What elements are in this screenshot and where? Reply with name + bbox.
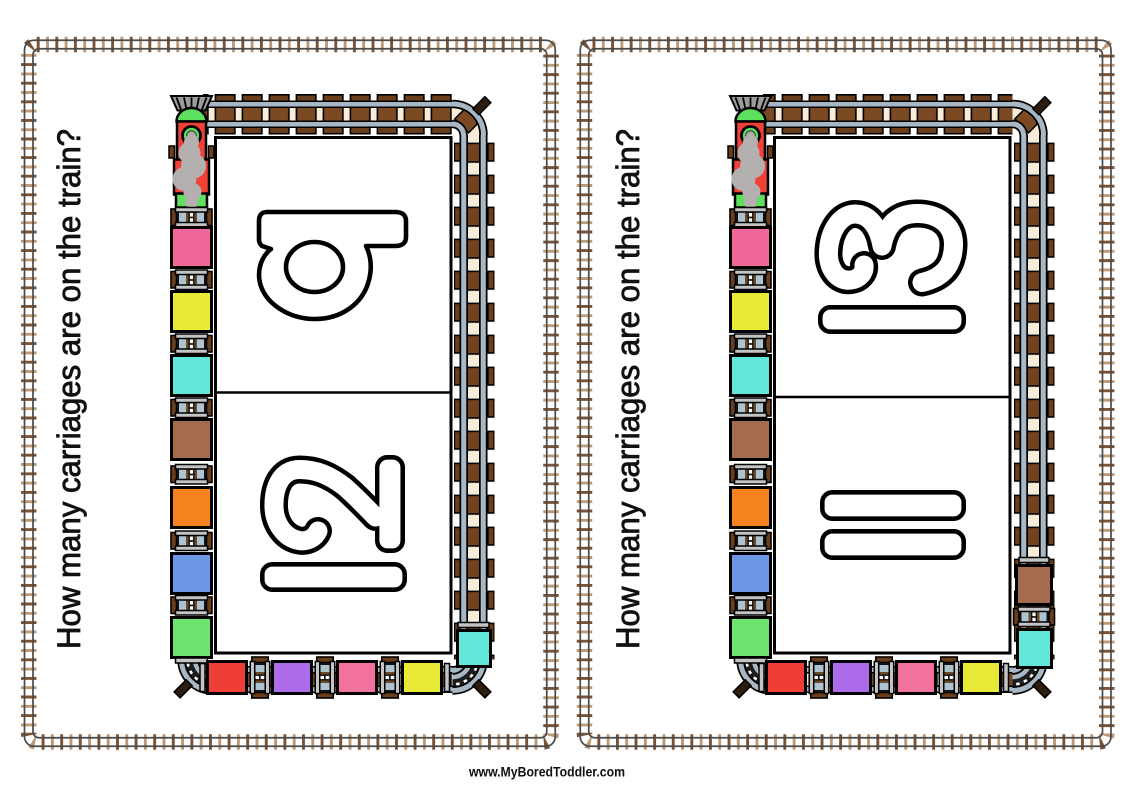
- svg-text:How many carriages are on the: How many carriages are on the train?: [51, 129, 87, 649]
- svg-text:www.MyBoredToddler.com: www.MyBoredToddler.com: [468, 764, 625, 780]
- svg-text:How many carriages are on the: How many carriages are on the train?: [610, 129, 646, 649]
